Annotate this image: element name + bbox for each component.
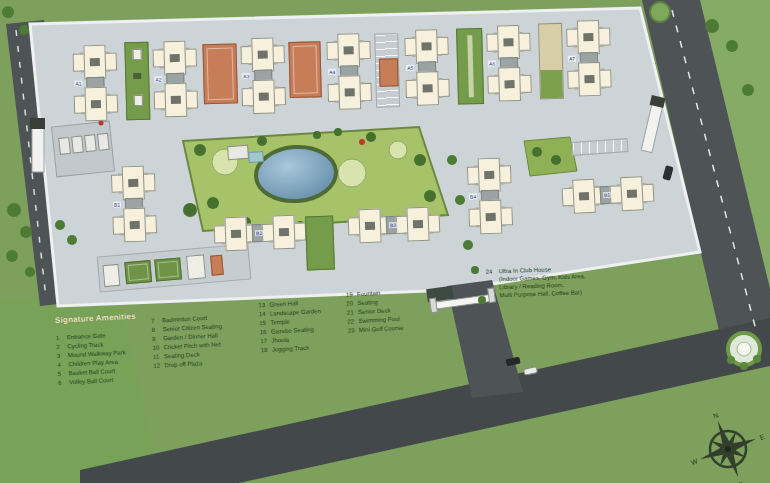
tennis-court (202, 43, 238, 104)
legend-column-2: 7Badminton Court 8Senior Citizen Seating… (151, 312, 254, 371)
tower-label: B1 (113, 201, 121, 207)
legend-column-3: 13Green Hall 14Landscape Garden 15Temple… (258, 296, 361, 355)
red-umbrella (359, 139, 365, 145)
parking-strip (374, 33, 400, 108)
tower-pair: A5 (404, 29, 450, 106)
tower-label: A7 (568, 56, 576, 62)
play-area-strip (124, 42, 150, 121)
tower (467, 157, 512, 193)
mini-court (379, 58, 399, 86)
tower-pair: B5 (561, 176, 655, 215)
mini-court (210, 255, 224, 276)
park-deck (249, 152, 264, 163)
tower (112, 207, 157, 243)
clubhouse-no: 24 (485, 267, 498, 275)
tower (74, 87, 119, 122)
tower-label: B5 (603, 192, 611, 198)
top-building-row: A1 A2 A3 A4 (60, 15, 643, 135)
green-pocket (524, 137, 577, 176)
kiosk (102, 264, 120, 287)
tower-pair: A4 (326, 33, 372, 110)
gate-left-canopy (30, 118, 45, 129)
tower-label: A5 (406, 65, 414, 71)
green-strip (305, 216, 335, 271)
tower (152, 40, 197, 75)
walkway-strip (538, 23, 564, 100)
tower (395, 206, 440, 242)
tower (487, 67, 532, 102)
gate-left (32, 126, 44, 172)
tower (153, 82, 198, 117)
clubhouse-legend: 24 Ultra In Club House (Indoor Games, Gy… (485, 264, 586, 299)
tower (566, 20, 611, 55)
pocket-tree (551, 155, 561, 165)
tower (609, 176, 655, 212)
tower (327, 75, 372, 110)
park-lawn-circle (389, 141, 407, 159)
legend-column-1: 1Entrance Gate 2Cycling Track 3Mound Wal… (56, 329, 159, 388)
pocket-tree (532, 147, 542, 157)
play-structure (133, 73, 141, 79)
tower-pair: B4 (467, 157, 514, 234)
green-court (124, 260, 152, 284)
tower-pair: B3 (347, 206, 440, 243)
legend-column-4: 19Fountain 20Seating 21Senior Deck 22Swi… (346, 285, 448, 335)
tower-pair: B2 (213, 214, 306, 251)
tower (326, 33, 371, 68)
tower (404, 29, 449, 64)
tower-pair: A1 (72, 45, 118, 122)
site-master-plan: N E S W A1 A2 A3 (0, 0, 770, 483)
tower-label: B2 (255, 230, 263, 236)
tower (261, 214, 306, 250)
tower (468, 199, 513, 235)
tower-pair: B1 (111, 165, 158, 242)
tower (240, 37, 285, 72)
tower (241, 79, 286, 114)
legend-title: Signature Amenities (55, 312, 136, 325)
park-pavilion (228, 145, 249, 159)
roundabout-green (650, 2, 670, 22)
tower (72, 45, 117, 80)
park-lawn-circle (338, 159, 366, 187)
tower (111, 165, 156, 201)
play-structure (134, 95, 143, 106)
tower (405, 71, 450, 106)
tower-pair: A7 (566, 20, 612, 97)
tower-label: A4 (328, 69, 336, 75)
tower-label: A1 (74, 80, 82, 86)
tower-label: A6 (488, 61, 496, 67)
tower (567, 62, 612, 97)
tennis-court (288, 41, 321, 98)
tower-label: A2 (154, 76, 162, 82)
cricket-pitch-strip (456, 28, 484, 105)
tower-label: A3 (242, 73, 250, 79)
green-court (154, 257, 182, 281)
tower (486, 25, 531, 60)
tower-label: B4 (469, 193, 477, 199)
amenities-legend: Signature Amenities 1Entrance Gate 2Cycl… (54, 281, 459, 412)
play-structure (133, 49, 142, 60)
kiosk (186, 254, 206, 279)
tower-pair: A6 (486, 25, 532, 102)
tower-label: B3 (389, 222, 397, 228)
tower-pair: A3 (240, 37, 286, 114)
tower-pair: A2 (152, 40, 198, 117)
